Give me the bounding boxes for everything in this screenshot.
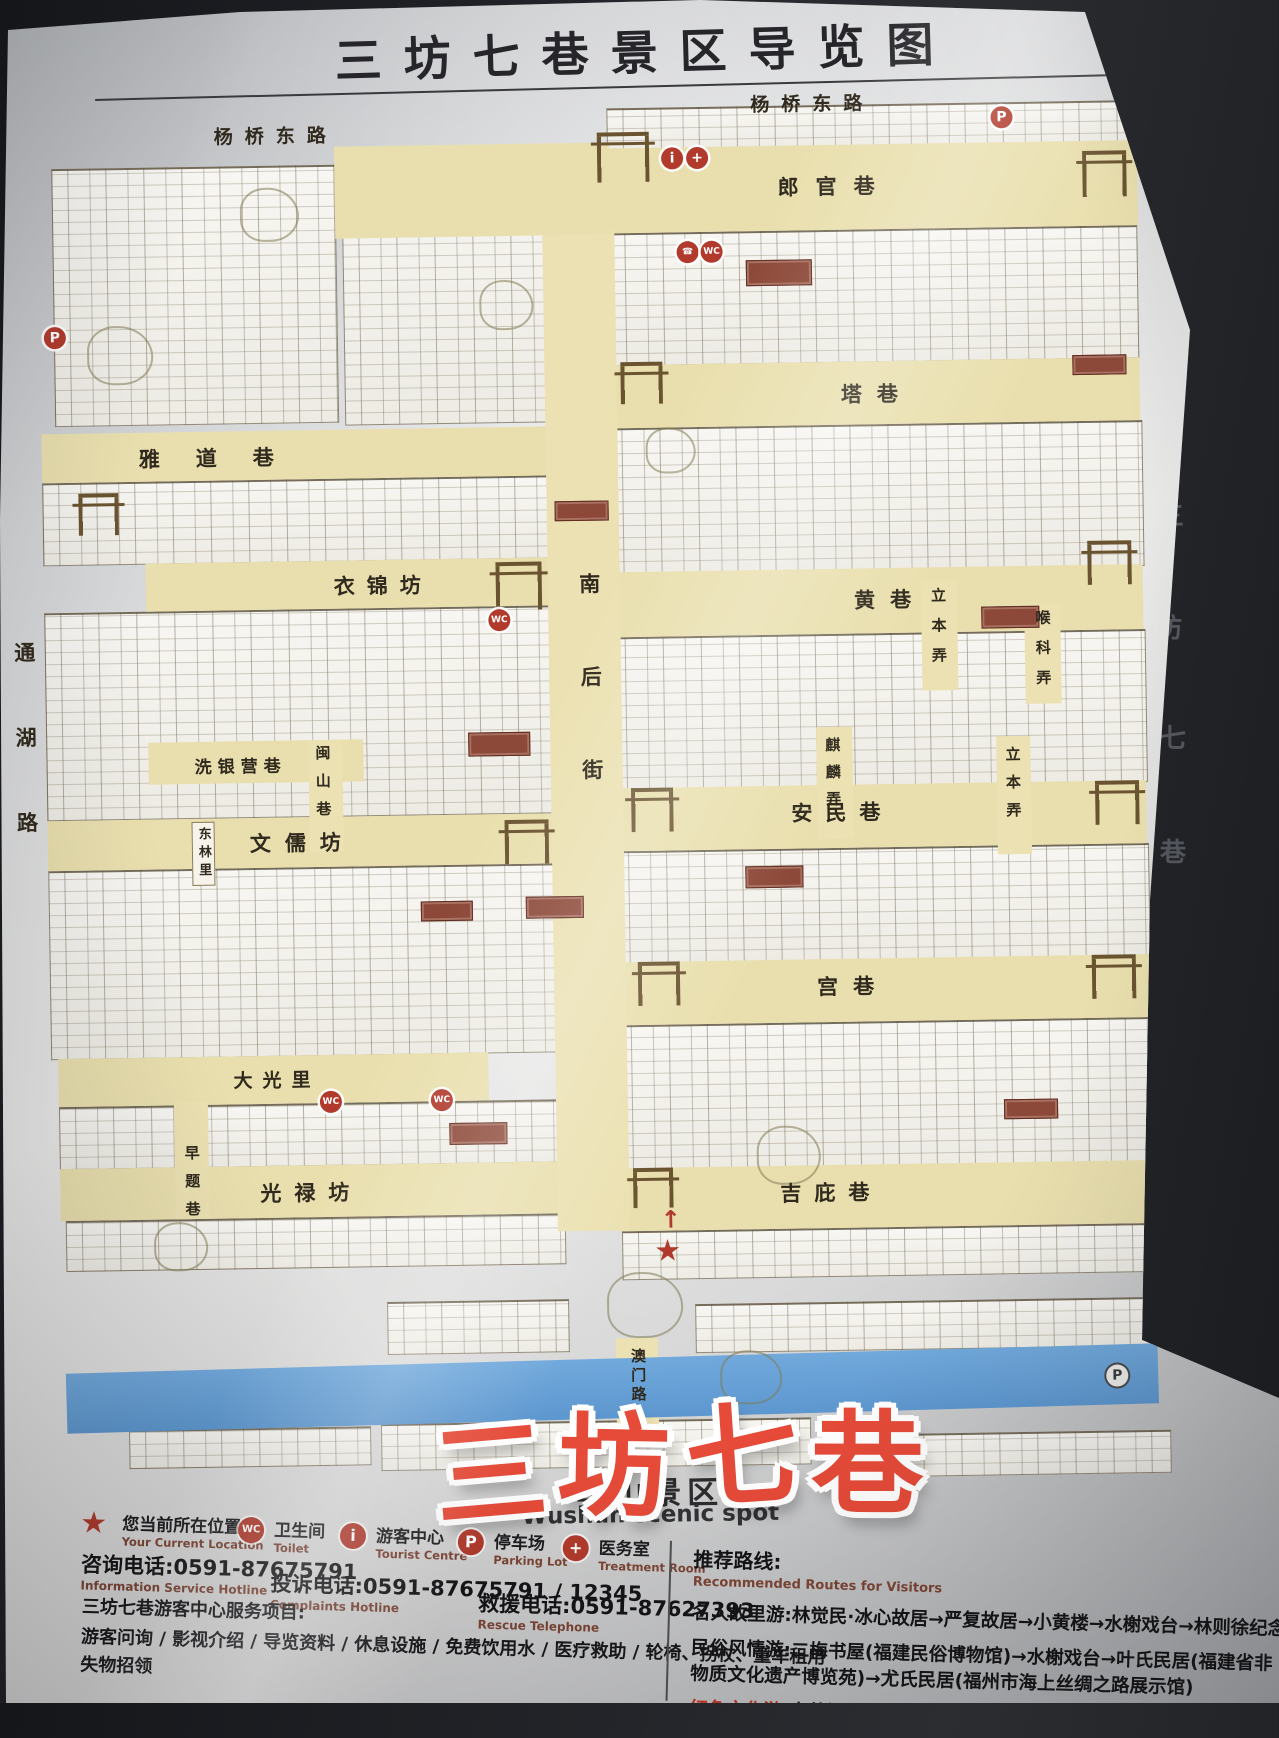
road-label-daguangli: 大光里: [233, 1065, 320, 1093]
building-strip: [609, 629, 1148, 790]
route-text: 林觉民·冰心故居→严复故居→小黄楼→水榭戏台→林则徐纪念馆: [792, 1605, 1279, 1640]
north-arrow-icon: ↑: [661, 1205, 682, 1233]
legend-tourist-centre: i 游客中心 Tourist Centre: [343, 1521, 468, 1563]
route-lead: 名人故里游:: [692, 1602, 792, 1626]
parking-icon: P: [458, 1529, 485, 1556]
lane-label-libennong-south: 立本弄: [1002, 746, 1024, 830]
tourist-centre-icon: i: [340, 1523, 367, 1550]
gateway-icon: [638, 961, 681, 1006]
legend-treatment-room: + 医务室 Treatment Room: [566, 1533, 706, 1576]
legend-parking: P 停车场 Parking Lot: [461, 1527, 568, 1569]
signboard-plaque: [421, 901, 473, 922]
visitor-centre-services: 三坊七巷游客中心服务项目: 游客问询 / 影视介绍 / 导览资料 / 休息设施 …: [80, 1592, 682, 1693]
lane-label-houkenong: 喉科弄: [1032, 609, 1054, 699]
signboard-plaque: [981, 606, 1039, 629]
lane-label-libennong-north: 立本弄: [928, 587, 950, 677]
building-strip: [42, 475, 555, 566]
legend-toilet: WC 卫生间 Toilet: [241, 1515, 325, 1556]
signboard-plaque: [1148, 89, 1198, 108]
gateway-icon: [495, 562, 542, 611]
tree-icon: [645, 427, 696, 474]
gateway-icon: [631, 787, 674, 832]
gateway-icon: [1082, 150, 1127, 197]
street-band-north-entry: [334, 142, 610, 238]
photo-of-map-sign: { "title": "三坊七巷景区导览图", "watermark": { "…: [0, 0, 1279, 1703]
building-strip: [612, 843, 1151, 964]
route-lead: 民俗风情游:: [691, 1637, 791, 1661]
signboard-plaque: [526, 896, 584, 919]
watermark-char: 巷: [811, 1374, 923, 1536]
road-label-huangxiang: 黄巷: [854, 583, 926, 614]
map-area: 杨桥东路 杨桥东路 郎官巷 塔巷 黄巷 安民巷 宫巷 吉庇巷 雅道巷 衣锦坊 文…: [0, 0, 1279, 1713]
map-sign-board: 三坊七巷景区导览图: [0, 0, 1279, 1703]
gateway-icon: [620, 362, 663, 405]
lane-label-donglinli: 东林里: [191, 822, 215, 886]
route-lead: 红色文化游:: [689, 1698, 789, 1722]
gateway-icon: [597, 132, 650, 183]
watermark-char: 七: [680, 1363, 803, 1532]
legend-en: Parking Lot: [493, 1553, 568, 1569]
signboard-plaque: [746, 259, 812, 286]
tree-icon: [607, 1271, 684, 1338]
gateway-icon: [633, 1168, 674, 1209]
road-label-guanglufang: 光禄坊: [260, 1176, 362, 1208]
toilet-icon: WC: [238, 1517, 265, 1544]
building-strip: [387, 1299, 570, 1355]
gateway-icon: [504, 819, 549, 864]
road-label-tonghulu: 通湖路: [9, 641, 43, 896]
legend-current-location: ★ 您当前所在位置 Your Current Location: [82, 1508, 265, 1552]
edge-reflection-char: 巷: [1160, 832, 1186, 869]
legend-cn: 停车场: [494, 1528, 569, 1555]
info-panel: ★ 您当前所在位置 Your Current Location WC 卫生间 T…: [0, 1502, 1279, 1721]
road-label-yadaoxiang: 雅道巷: [139, 441, 310, 474]
building-strip: [129, 1426, 372, 1469]
road-label-jipixiang: 吉庇巷: [780, 1176, 882, 1208]
street-band-jipixiang: [617, 1160, 1153, 1231]
gateway-icon: [1087, 540, 1132, 585]
building-strip: [44, 605, 559, 821]
current-location-star-icon: ★: [654, 1233, 681, 1268]
signboard-plaque: [449, 1122, 507, 1145]
signboard-plaque: [554, 500, 608, 521]
signboard-plaque: [1004, 1098, 1058, 1119]
building-strip: [622, 1223, 1154, 1280]
road-label-yijinfang: 衣锦坊: [334, 569, 433, 601]
route-red-culture: 红色文化游:中共福州市委旧址→勤廉馆→三坊七巷保护成果展: [689, 1694, 1279, 1737]
route-celebrity: 名人故里游:林觉民·冰心故居→严复故居→小黄楼→水榭戏台→林则徐纪念馆: [692, 1598, 1279, 1641]
building-strip: [48, 863, 565, 1060]
legend-en: Treatment Room: [598, 1559, 706, 1576]
legend-cn: 医务室: [598, 1534, 706, 1562]
road-label-yangqiao-left: 杨桥东路: [213, 121, 337, 150]
medical-icon: +: [562, 1535, 589, 1562]
road-label-nanhoujie: 南后街: [574, 573, 608, 852]
road-label-taxiang: 塔巷: [841, 378, 913, 409]
route-text: 中共福州市委旧址→勤廉馆→三坊七巷保护成果展: [789, 1701, 1190, 1733]
lane-label-zaotixiang: 早题巷: [182, 1145, 204, 1229]
lane-label-qilinnong: 麒麟弄: [822, 737, 844, 818]
legend-en: Tourist Centre: [375, 1547, 467, 1564]
road-label-gongxiang: 宫巷: [817, 970, 889, 1001]
building-strip: [615, 1017, 1154, 1170]
signboard-plaque: [745, 865, 803, 888]
edge-reflection-char: 七: [1160, 718, 1186, 755]
building-strip: [66, 1213, 567, 1272]
signboard-plaque: [1072, 354, 1126, 375]
gateway-icon: [1092, 954, 1137, 999]
legend-cn: 游客中心: [376, 1522, 468, 1550]
road-label-langguanxiang: 郎官巷: [777, 170, 891, 202]
tree-icon: [154, 1222, 209, 1272]
road-label-xiyinyingxiang: 洗银营巷: [194, 752, 286, 778]
watermark-char: 坊: [556, 1375, 671, 1539]
road-label-yangqiao-right: 杨桥东路: [750, 88, 874, 117]
route-folk-culture: 民俗风情游:二梅书屋(福建民俗博物馆)→水榭戏台→叶氏民居(福建省非物质文化遗产…: [690, 1633, 1279, 1702]
signboard-plaque: [468, 732, 530, 757]
legend-cn: 卫生间: [274, 1516, 326, 1542]
recommended-routes: 推荐路线: Recommended Routes for Visitors 名人…: [689, 1543, 1279, 1737]
lane-label-minshanxiang: 闽山巷: [312, 745, 334, 829]
star-icon: ★: [80, 1508, 108, 1539]
gateway-icon: [78, 493, 119, 536]
tree-icon: [479, 280, 534, 331]
gateway-icon: [1095, 780, 1140, 825]
road-label-wenrufang: 文儒坊: [250, 826, 355, 858]
